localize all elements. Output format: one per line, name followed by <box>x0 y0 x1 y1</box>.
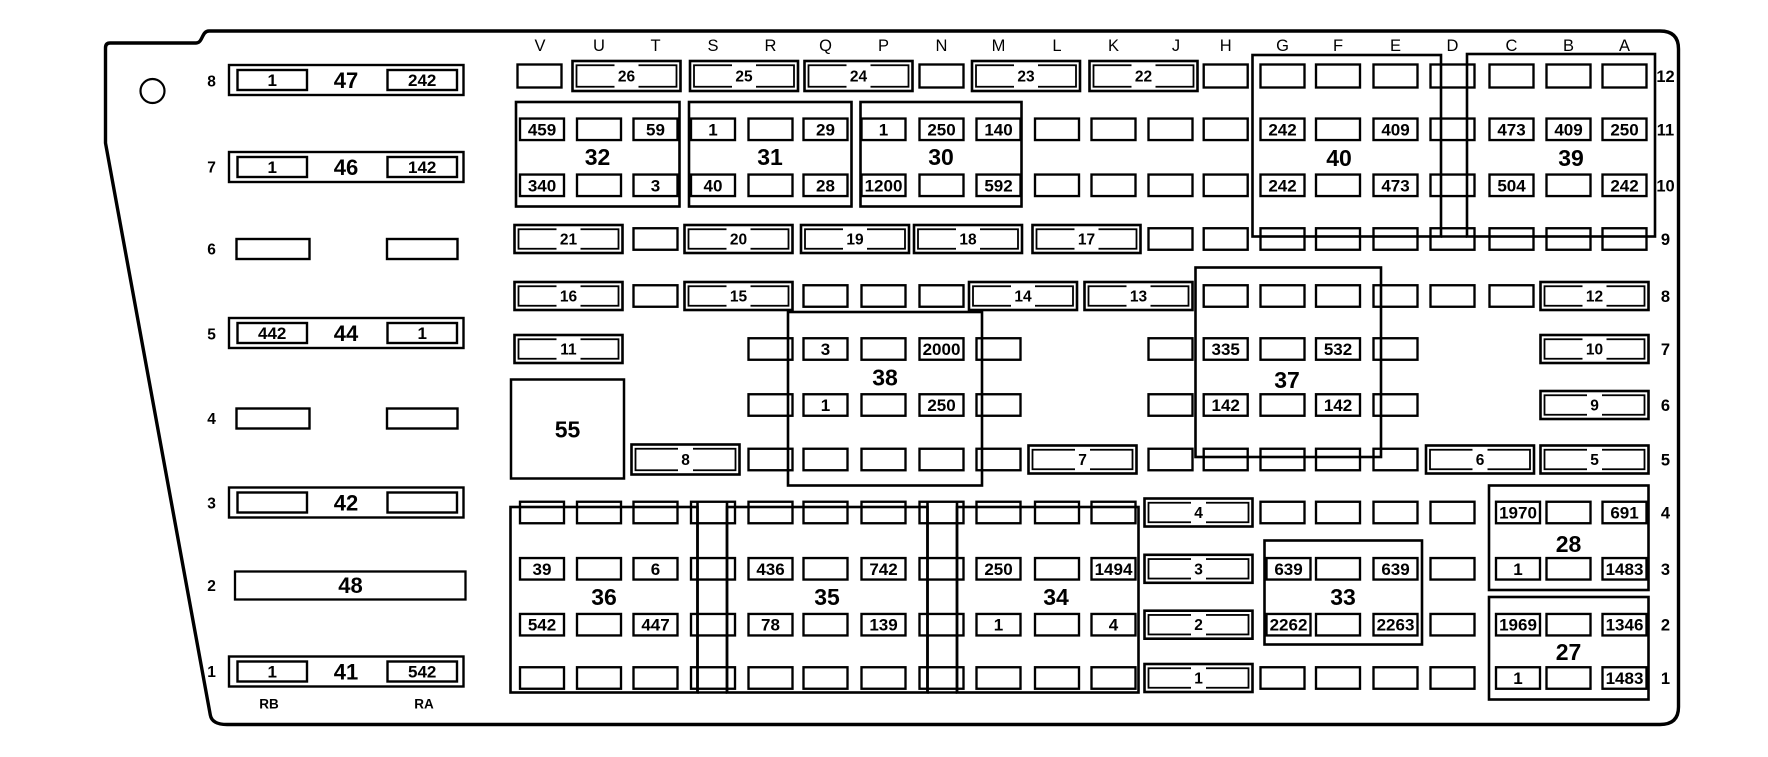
svg-text:1: 1 <box>1513 669 1522 688</box>
svg-text:250: 250 <box>984 560 1012 579</box>
svg-text:7: 7 <box>207 159 216 176</box>
svg-text:14: 14 <box>1014 289 1032 306</box>
svg-text:33: 33 <box>1330 584 1356 610</box>
svg-text:3: 3 <box>651 176 660 195</box>
svg-text:7: 7 <box>1661 341 1670 359</box>
svg-text:250: 250 <box>927 120 955 139</box>
svg-text:1: 1 <box>267 158 276 177</box>
svg-text:9: 9 <box>1590 398 1599 415</box>
svg-text:1: 1 <box>207 664 216 681</box>
svg-text:39: 39 <box>1558 145 1584 171</box>
svg-text:242: 242 <box>1268 120 1296 139</box>
svg-text:10: 10 <box>1656 177 1674 195</box>
svg-text:6: 6 <box>207 241 216 258</box>
svg-text:11: 11 <box>560 342 577 359</box>
svg-text:22: 22 <box>1135 69 1152 86</box>
svg-text:38: 38 <box>872 365 898 391</box>
svg-text:1494: 1494 <box>1095 560 1133 579</box>
svg-text:23: 23 <box>1017 69 1035 86</box>
svg-text:R: R <box>765 37 777 55</box>
svg-text:409: 409 <box>1381 120 1409 139</box>
svg-text:28: 28 <box>1556 531 1582 557</box>
svg-text:44: 44 <box>334 321 359 346</box>
svg-text:B: B <box>1563 37 1574 55</box>
svg-text:J: J <box>1172 37 1180 55</box>
svg-text:Q: Q <box>819 37 832 55</box>
svg-text:2000: 2000 <box>923 340 961 359</box>
svg-text:G: G <box>1276 37 1289 55</box>
svg-text:55: 55 <box>555 417 581 443</box>
svg-text:11: 11 <box>1657 121 1674 139</box>
svg-text:35: 35 <box>814 584 840 610</box>
svg-text:17: 17 <box>1078 232 1095 249</box>
svg-text:15: 15 <box>730 289 748 306</box>
svg-text:8: 8 <box>1661 288 1670 306</box>
svg-text:27: 27 <box>1556 639 1582 665</box>
svg-text:6: 6 <box>651 560 660 579</box>
svg-text:1: 1 <box>1513 560 1522 579</box>
svg-text:40: 40 <box>1326 145 1352 171</box>
svg-text:473: 473 <box>1381 176 1409 195</box>
svg-text:34: 34 <box>1043 584 1069 610</box>
svg-text:691: 691 <box>1610 504 1638 523</box>
svg-text:639: 639 <box>1381 560 1409 579</box>
svg-text:13: 13 <box>1130 289 1148 306</box>
svg-text:42: 42 <box>334 490 358 515</box>
svg-text:F: F <box>1333 37 1343 55</box>
svg-text:N: N <box>936 37 948 55</box>
svg-text:28: 28 <box>816 176 835 195</box>
svg-text:1: 1 <box>821 396 830 415</box>
svg-text:L: L <box>1052 37 1061 55</box>
svg-text:532: 532 <box>1324 340 1352 359</box>
svg-text:1: 1 <box>1661 670 1670 688</box>
svg-text:473: 473 <box>1497 120 1525 139</box>
svg-text:1483: 1483 <box>1606 560 1644 579</box>
svg-text:409: 409 <box>1554 120 1582 139</box>
svg-text:78: 78 <box>761 616 780 635</box>
svg-text:5: 5 <box>207 326 216 343</box>
svg-text:3: 3 <box>821 340 830 359</box>
svg-text:41: 41 <box>334 659 358 684</box>
svg-text:16: 16 <box>560 289 578 306</box>
svg-text:46: 46 <box>334 155 358 180</box>
svg-text:H: H <box>1220 37 1232 55</box>
svg-text:C: C <box>1506 37 1518 55</box>
svg-text:24: 24 <box>850 69 868 86</box>
svg-text:36: 36 <box>591 584 617 610</box>
svg-text:29: 29 <box>816 120 835 139</box>
svg-text:39: 39 <box>533 560 552 579</box>
svg-text:RA: RA <box>414 697 434 712</box>
svg-text:48: 48 <box>338 573 362 598</box>
svg-text:250: 250 <box>927 396 955 415</box>
svg-text:V: V <box>534 37 545 55</box>
svg-text:1: 1 <box>708 120 717 139</box>
svg-text:250: 250 <box>1610 120 1638 139</box>
svg-text:S: S <box>707 37 718 55</box>
svg-text:40: 40 <box>704 176 723 195</box>
svg-text:8: 8 <box>207 73 216 90</box>
svg-text:3: 3 <box>1194 561 1203 578</box>
svg-text:2263: 2263 <box>1377 616 1415 635</box>
svg-text:1: 1 <box>267 71 276 90</box>
svg-text:T: T <box>650 37 660 55</box>
svg-text:140: 140 <box>984 120 1012 139</box>
svg-text:59: 59 <box>646 120 665 139</box>
svg-text:639: 639 <box>1274 560 1302 579</box>
svg-text:142: 142 <box>1324 396 1352 415</box>
svg-text:6: 6 <box>1661 397 1670 415</box>
svg-text:1: 1 <box>879 120 888 139</box>
svg-text:340: 340 <box>528 176 556 195</box>
svg-text:20: 20 <box>730 232 747 249</box>
svg-text:542: 542 <box>408 663 436 682</box>
svg-text:5: 5 <box>1661 452 1670 470</box>
svg-text:E: E <box>1390 37 1401 55</box>
svg-text:31: 31 <box>757 144 783 170</box>
svg-text:12: 12 <box>1586 289 1603 306</box>
svg-text:1: 1 <box>417 324 426 343</box>
svg-text:10: 10 <box>1586 342 1603 359</box>
svg-text:A: A <box>1619 37 1630 55</box>
svg-text:RB: RB <box>259 697 279 712</box>
svg-text:8: 8 <box>681 452 690 469</box>
svg-text:1483: 1483 <box>1606 669 1644 688</box>
svg-text:5: 5 <box>1590 452 1599 469</box>
svg-text:2: 2 <box>207 578 216 595</box>
svg-text:436: 436 <box>756 560 784 579</box>
svg-text:M: M <box>992 37 1006 55</box>
svg-text:37: 37 <box>1274 367 1300 393</box>
svg-text:6: 6 <box>1476 452 1485 469</box>
svg-text:3: 3 <box>207 495 216 512</box>
svg-text:12: 12 <box>1656 68 1674 86</box>
svg-text:D: D <box>1447 37 1459 55</box>
svg-text:7: 7 <box>1078 452 1087 469</box>
svg-text:25: 25 <box>735 69 753 86</box>
svg-text:242: 242 <box>408 71 436 90</box>
svg-text:1969: 1969 <box>1499 616 1537 635</box>
svg-text:1: 1 <box>1194 671 1203 688</box>
svg-text:18: 18 <box>959 232 977 249</box>
svg-text:4: 4 <box>1194 505 1203 522</box>
svg-text:2262: 2262 <box>1270 616 1308 635</box>
svg-text:1346: 1346 <box>1606 616 1644 635</box>
svg-text:592: 592 <box>984 176 1012 195</box>
svg-text:P: P <box>878 37 889 55</box>
svg-text:447: 447 <box>641 616 669 635</box>
svg-text:21: 21 <box>560 232 578 249</box>
svg-text:26: 26 <box>618 69 636 86</box>
svg-text:242: 242 <box>1268 176 1296 195</box>
svg-text:2: 2 <box>1661 617 1670 635</box>
svg-text:32: 32 <box>585 144 611 170</box>
svg-text:504: 504 <box>1497 176 1526 195</box>
svg-text:30: 30 <box>928 144 954 170</box>
svg-text:139: 139 <box>869 616 897 635</box>
svg-text:3: 3 <box>1661 561 1670 579</box>
svg-text:4: 4 <box>1661 505 1671 523</box>
svg-text:335: 335 <box>1212 340 1240 359</box>
svg-text:1: 1 <box>994 616 1003 635</box>
svg-text:142: 142 <box>408 158 436 177</box>
svg-text:242: 242 <box>1610 176 1638 195</box>
svg-text:9: 9 <box>1661 231 1670 249</box>
svg-text:1200: 1200 <box>865 176 903 195</box>
svg-text:2: 2 <box>1194 617 1203 634</box>
svg-text:459: 459 <box>528 120 556 139</box>
svg-text:442: 442 <box>258 324 286 343</box>
svg-text:U: U <box>593 37 605 55</box>
svg-text:542: 542 <box>528 616 556 635</box>
svg-text:1: 1 <box>267 663 276 682</box>
svg-text:142: 142 <box>1212 396 1240 415</box>
svg-text:19: 19 <box>846 232 864 249</box>
svg-text:K: K <box>1108 37 1119 55</box>
svg-text:742: 742 <box>869 560 897 579</box>
svg-text:1970: 1970 <box>1499 504 1537 523</box>
svg-text:4: 4 <box>1109 616 1119 635</box>
svg-text:4: 4 <box>207 411 216 428</box>
svg-text:47: 47 <box>334 68 358 93</box>
